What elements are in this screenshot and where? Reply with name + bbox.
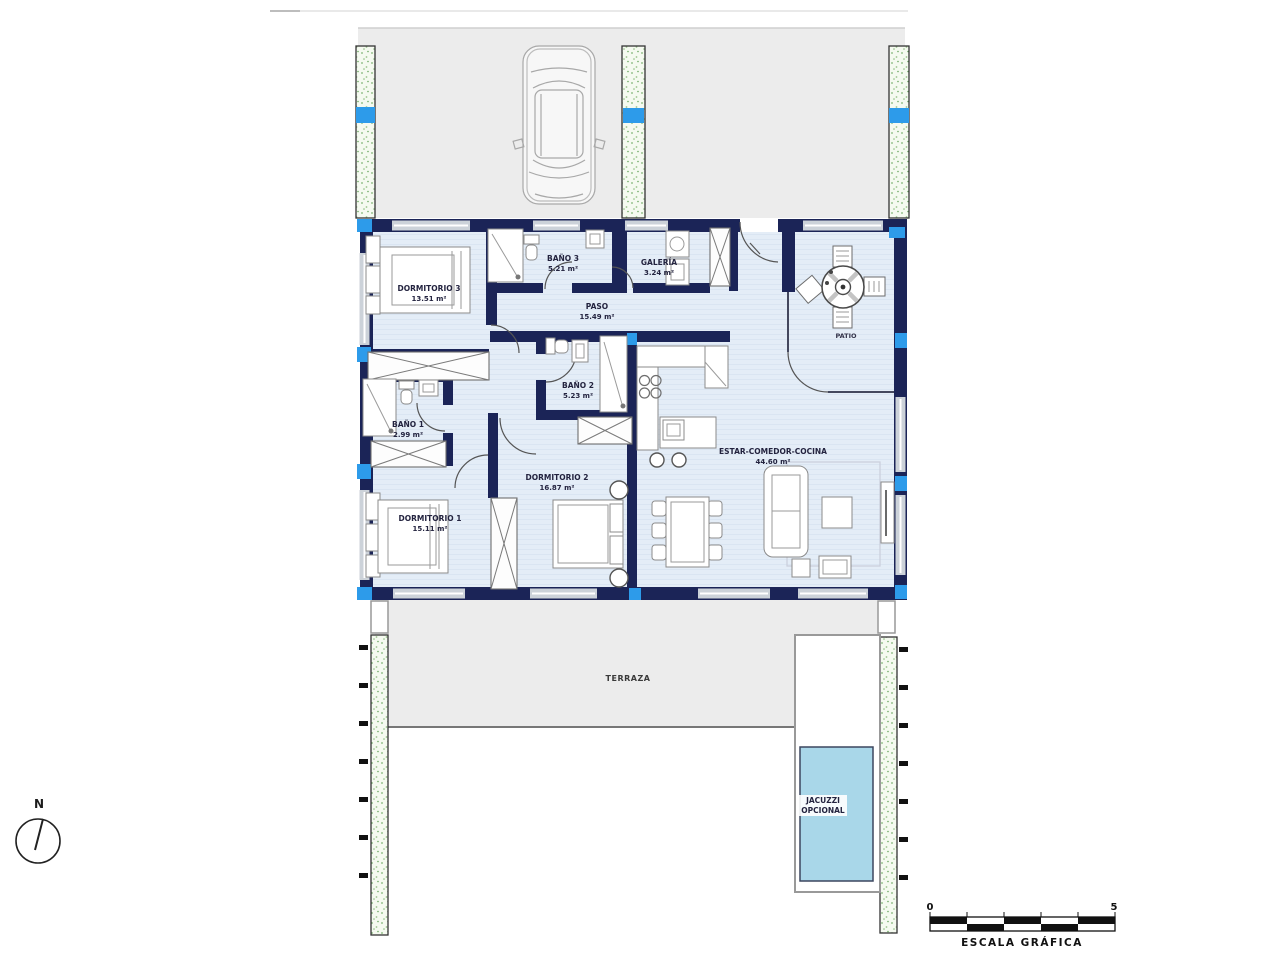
scale-start-label: 0: [927, 902, 934, 913]
room-area-dormitorio-2: 16.87 m²: [540, 484, 575, 492]
room-area-dormitorio-1: 15.11 m²: [413, 525, 448, 533]
room-label-bano-2: BAÑO 2: [562, 381, 594, 390]
hedge-wall-bottom-left: [359, 635, 388, 935]
coffee-table: [822, 497, 852, 528]
hedge-wall-top-middle: [622, 46, 645, 218]
patio-label: PATIO: [835, 332, 857, 340]
terrace-pillar-right: [878, 601, 895, 633]
wardrobe-column: [491, 498, 517, 589]
room-area-dormitorio-3: 13.51 m²: [412, 295, 447, 303]
room-area-bano-3: 5.21 m²: [548, 265, 578, 273]
tv-unit: [881, 482, 894, 543]
scale-caption: ESCALA GRÁFICA: [961, 936, 1083, 949]
terraza-label: TERRAZA: [606, 674, 651, 683]
hedge-wall-top-right: [889, 46, 909, 218]
media-console: [819, 556, 851, 578]
room-label-galeria: GALERÍA: [641, 258, 677, 267]
wardrobe-bano-1: [371, 441, 446, 467]
hedge-wall-bottom-right: [880, 637, 908, 933]
house: DORMITORIO 3 13.51 m² BAÑO 3 5.21 m² GAL…: [357, 219, 907, 600]
wardrobe-dormitorio-2: [578, 417, 632, 444]
wall-ticks-left: [359, 645, 368, 878]
room-label-estar-comedor-cocina: ESTAR-COMEDOR-COCINA: [719, 447, 827, 456]
hedge-wall-top-left: [356, 46, 375, 218]
jacuzzi-label-line2: OPCIONAL: [801, 806, 845, 815]
wall-marker: [356, 107, 375, 123]
room-label-dormitorio-3: DORMITORIO 3: [398, 284, 461, 293]
wardrobe-dormitorio-3: [368, 352, 489, 380]
compass-needle: [35, 819, 43, 850]
jacuzzi: JACUZZI OPCIONAL: [795, 635, 880, 892]
scale-bar: 0 5 ESCALA GRÁFICA: [927, 902, 1118, 949]
dining-set: [652, 497, 722, 567]
room-area-estar-comedor-cocina: 44.60 m²: [756, 458, 791, 466]
compass: N: [16, 797, 60, 863]
room-label-bano-1: BAÑO 1: [392, 420, 424, 429]
room-area-bano-1: 2.99 m²: [393, 431, 423, 439]
scale-end-label: 5: [1111, 902, 1118, 913]
side-stool: [792, 559, 810, 577]
bed-dormitorio-1: [366, 493, 448, 577]
terrace-pillar-left: [371, 601, 388, 633]
room-label-dormitorio-1: DORMITORIO 1: [399, 514, 462, 523]
floor-plan-page: DORMITORIO 3 13.51 m² BAÑO 3 5.21 m² GAL…: [0, 0, 1280, 960]
car-topview: [513, 46, 605, 204]
jacuzzi-label-line1: JACUZZI: [805, 796, 840, 805]
room-area-bano-2: 5.23 m²: [563, 392, 593, 400]
sofa: [764, 466, 808, 557]
room-area-paso: 15.49 m²: [580, 313, 615, 321]
room-area-galeria: 3.24 m²: [644, 269, 674, 277]
room-label-bano-3: BAÑO 3: [547, 254, 579, 263]
north-label: N: [34, 797, 44, 811]
wall-ticks-right: [899, 647, 908, 880]
room-label-paso: PASO: [586, 302, 608, 311]
floor-plan-svg: DORMITORIO 3 13.51 m² BAÑO 3 5.21 m² GAL…: [0, 0, 1280, 960]
room-label-dormitorio-2: DORMITORIO 2: [526, 473, 589, 482]
scale-bar-segments: [930, 912, 1115, 931]
